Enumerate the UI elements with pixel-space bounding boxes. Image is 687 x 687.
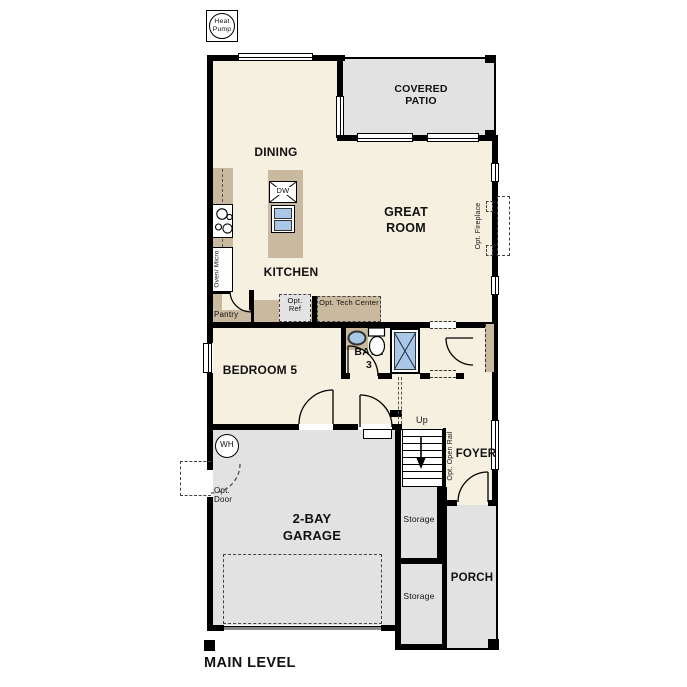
wall [207, 625, 224, 631]
window [491, 276, 499, 295]
sink-basin [274, 208, 292, 219]
wall [413, 135, 427, 141]
wall [333, 424, 358, 430]
wall [341, 373, 350, 379]
storage-lower-slab [401, 564, 442, 644]
garage-label: 2-BAY GARAGE [270, 511, 354, 545]
garage-door-outline [223, 554, 382, 624]
wall [207, 424, 299, 430]
opt-ref-label: Opt. Ref [281, 297, 309, 314]
dishwasher-label: DW [272, 187, 294, 195]
window [491, 420, 499, 470]
opt-door-label: Opt. Door [214, 487, 242, 505]
window [238, 53, 313, 61]
kitchen-label: KITCHEN [253, 266, 329, 279]
patio-edge [343, 57, 496, 59]
great-room-label: GREAT ROOM [368, 205, 444, 236]
wall [401, 558, 437, 564]
wall [456, 373, 464, 379]
sliding-door [357, 133, 413, 142]
garage-entry-step [363, 429, 392, 439]
wall [207, 497, 213, 625]
cased-opening [430, 370, 456, 378]
storage-lower-label: Storage [399, 592, 439, 602]
wall [420, 373, 430, 379]
opt-tech-center-label: Opt. Tech Center [319, 299, 379, 307]
dashed-opening [398, 377, 402, 424]
bedroom-5-label: BEDROOM 5 [210, 364, 310, 377]
wall [492, 135, 498, 163]
stair-rail [443, 428, 446, 488]
closet-rod [485, 324, 494, 372]
cased-opening [430, 321, 456, 329]
wall [337, 55, 343, 96]
opt-fireplace-box [497, 196, 510, 256]
opt-fireplace-box [486, 201, 493, 212]
sliding-door [427, 133, 479, 142]
garage-door-line [224, 626, 381, 630]
patio-edge [494, 59, 496, 135]
stairs [402, 429, 443, 487]
title-marker [204, 640, 215, 651]
heat-pump-label: Heat Pump [208, 18, 236, 34]
dining-label: DINING [238, 146, 314, 159]
patio-post [485, 55, 496, 63]
storage-upper-label: Storage [399, 515, 439, 525]
porch-edge [496, 506, 498, 650]
porch-post [488, 639, 499, 650]
sliding-door [336, 96, 344, 138]
opt-fireplace-label: Opt. Fireplace [475, 196, 485, 256]
pantry-label: Pantry [214, 311, 252, 320]
wall [395, 430, 401, 644]
water-heater-label: WH [215, 441, 239, 450]
wall [447, 500, 457, 506]
wall [395, 644, 442, 650]
plan-title: MAIN LEVEL [204, 655, 344, 671]
covered-patio-label: COVERED PATIO [383, 84, 459, 108]
opt-fireplace-box [486, 245, 493, 256]
wall [207, 373, 213, 424]
window [491, 163, 499, 182]
oven-micro-label: Oven/ Micro [214, 249, 232, 290]
opt-door-outline [180, 461, 211, 496]
bath-3-label: BATH 3 [350, 346, 388, 371]
sink-basin [274, 220, 292, 231]
cooktop [212, 204, 233, 238]
shower-pan [394, 332, 416, 370]
wall [343, 135, 357, 141]
porch-label: PORCH [448, 572, 496, 585]
stairs-up-label: Up [407, 415, 437, 425]
foyer-label: FOYER [452, 448, 500, 461]
wall [442, 487, 447, 650]
floor-plan: Oven/ Micro DW Pantry Opt. Ref Opt. Tech… [0, 0, 687, 687]
